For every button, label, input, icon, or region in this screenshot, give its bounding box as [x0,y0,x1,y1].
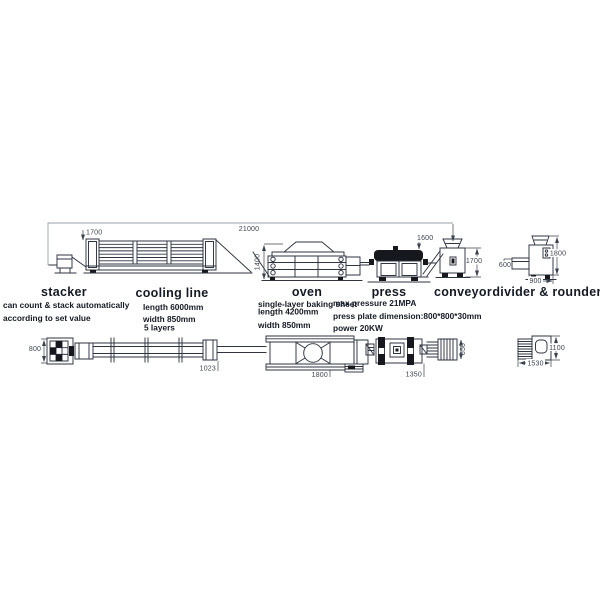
label-conveyor: conveyor [434,285,492,299]
cooling-layer-stack [99,241,203,264]
conveyor-feet [442,259,463,278]
cooling-base-rail [86,266,216,270]
divider-inlet-box [512,258,529,269]
label-divider-rounder: divider & rounder [492,285,600,299]
cooling-line-side-view: 1700 [83,230,269,277]
dim-divider-inlet-leader [504,259,512,261]
dim-oven-height-value: 1400 [255,254,262,270]
label-oven: oven [292,285,322,299]
press-spec-1: max pressure 21MPA [333,298,416,308]
press-top-block [374,250,423,261]
machine-labels: stacker cooling line oven press conveyor… [41,285,600,300]
press-plan-view: 1350 [366,337,427,379]
cooling-spec-1: length 6000mm [143,302,203,312]
divider-plan-view: 1100 1530 [518,336,565,368]
infeed-box-outline [75,343,93,359]
dim-total-length-value: 21000 [239,226,259,233]
oven-rollers [271,257,343,275]
machine-specs: can count & stack automatically accordin… [3,298,482,333]
oven-spec-2: length 4200mm [258,307,318,317]
stacker-side-view [49,255,86,273]
oven-spec-3: width 850mm [257,320,311,330]
press-body [377,261,421,277]
divider-plan-drum [536,340,548,353]
press-spec-3: power 20KW [333,323,383,333]
oven-body [268,256,346,277]
dim-transfer-value: 1023 [200,366,216,373]
production-line-drawing: 21000 1700 1400 1600 [0,0,600,600]
dim-divider-plan-width-value: 1100 [549,345,565,352]
stacker-plan-view [47,338,74,364]
label-press: press [372,285,407,299]
cooling-line-plan-view: 1023 [93,338,266,373]
conveyor-plan-view: 650 [427,339,467,360]
press-feet [379,277,418,281]
conveyor-side-view: 1700 [419,239,482,278]
cooling-plan-posts [111,338,182,362]
dim-press-plan-value: 1350 [406,372,422,379]
diagram-svg: 21000 1700 1400 1600 [0,0,600,600]
press-plan-plate-center [396,349,399,352]
dim-cooling-height-value: 1700 [86,230,102,237]
conveyor-hopper [443,239,462,248]
label-stacker: stacker [41,285,87,299]
cooling-ground-and-chutes [84,240,269,276]
oven-plan-fan [304,344,323,363]
dim-line-width: 800 [29,339,47,363]
press-spec-2: press plate dimension:800*800*30mm [333,311,482,321]
label-cooling-line: cooling line [135,286,208,300]
oven-plan-view: 1800 [266,336,368,379]
stacker-spec-1: can count & stack automatically [3,300,130,310]
dim-press-height-value: 1600 [417,235,433,242]
oven-end-box [346,257,360,275]
press-side-view: 1600 [360,235,436,282]
plan-view: 800 1023 1800 [29,336,565,379]
dim-line-width-value: 800 [29,346,41,353]
stacker-outline [49,255,86,273]
transfer-belt-lines [217,347,266,353]
dim-divider-inlet-value: 600 [499,262,511,269]
oven-side-view: 1400 [255,242,363,281]
dim-oven-plan-value: 1800 [312,372,328,379]
dim-conveyor-plan-value: 650 [460,343,467,355]
divider-plan-infeed-hatch [518,342,532,357]
infeed-box-plan-view [75,343,93,359]
stacker-spec-2: according to set value [3,313,91,323]
cooling-plan-end-housing [203,340,217,360]
dim-divider-height-value: 1800 [550,251,566,258]
dim-divider-plan-length-value: 1530 [527,361,543,368]
cooling-spec-3: 5 layers [144,323,175,333]
dim-conveyor-height-value: 1700 [466,258,482,265]
divider-rounder-side-view: 1800 600 900 [499,236,567,285]
press-plan-right-coupler [420,345,427,354]
press-plan-left-coupler [366,344,374,355]
dim-divider-width-value: 900 [529,278,541,285]
oven-plan-control-fill [348,366,355,370]
divider-hopper [532,236,549,245]
